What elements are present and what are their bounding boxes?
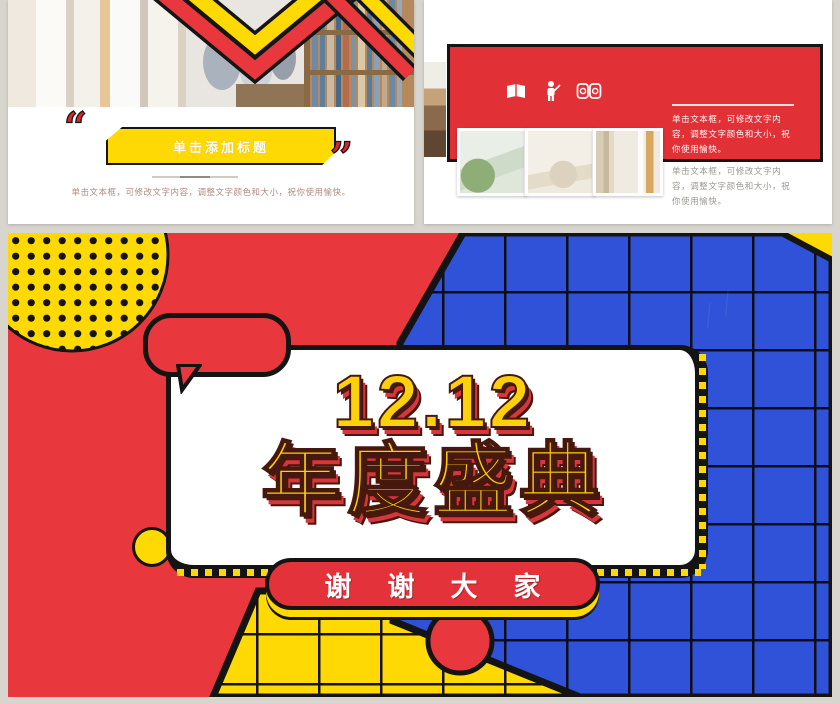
slide-thumbnail-2[interactable]: 单击文本框，可修改文字内容，调整文字颜色和大小，祝你使用愉快。 单击文本框，可修…: [424, 0, 832, 224]
slide1-title-banner: 单击添加标题: [106, 127, 336, 165]
divider-line: [672, 104, 794, 106]
red-circle: [428, 609, 492, 673]
slide2-caption-on-banner: 单击文本框，可修改文字内容，调整文字颜色和大小，祝你使用愉快。: [672, 112, 794, 157]
slide1-title-text: 单击添加标题: [173, 137, 269, 156]
title-number: 12.12: [333, 364, 533, 441]
footer-banner: 谢谢大家: [265, 558, 600, 610]
reading-book-icon: [576, 81, 602, 101]
divider-line: [152, 176, 238, 178]
slide-thumbnail-1[interactable]: “ 单击添加标题 ” 单击文本框，可修改文字内容，调整文字颜色和大小，祝你使用愉…: [8, 0, 414, 224]
photo-thumbnail-notebooks: [525, 128, 595, 196]
presenter-icon: [542, 80, 562, 102]
speech-bubble-tail: [176, 364, 202, 394]
speech-bubble: [143, 313, 291, 377]
title-card: 12.12 年度盛典: [166, 345, 708, 578]
footer-banner-text: 谢谢大家: [325, 565, 577, 604]
photo-thumbnail-window: [457, 128, 527, 196]
slide-main-1212-ceremony[interactable]: 12.12 年度盛典 谢谢大家 ⟋⟋ ⟋⟋: [8, 233, 832, 697]
photo-thumbnail-books: [593, 128, 663, 196]
open-book-icon: [504, 81, 528, 101]
slide1-caption: 单击文本框，可修改文字内容，调整文字颜色和大小，祝你使用愉快。: [48, 186, 374, 198]
slide2-caption-below: 单击文本框，可修改文字内容，调整文字颜色和大小，祝你使用愉快。: [672, 164, 794, 209]
title-text: 年度盛典: [261, 441, 605, 521]
open-quote-mark: “: [64, 108, 87, 148]
close-quote-mark: ”: [330, 138, 353, 178]
library-photo: [8, 0, 414, 107]
slide2-icon-row: [504, 80, 602, 102]
desk-photo: [424, 62, 446, 157]
